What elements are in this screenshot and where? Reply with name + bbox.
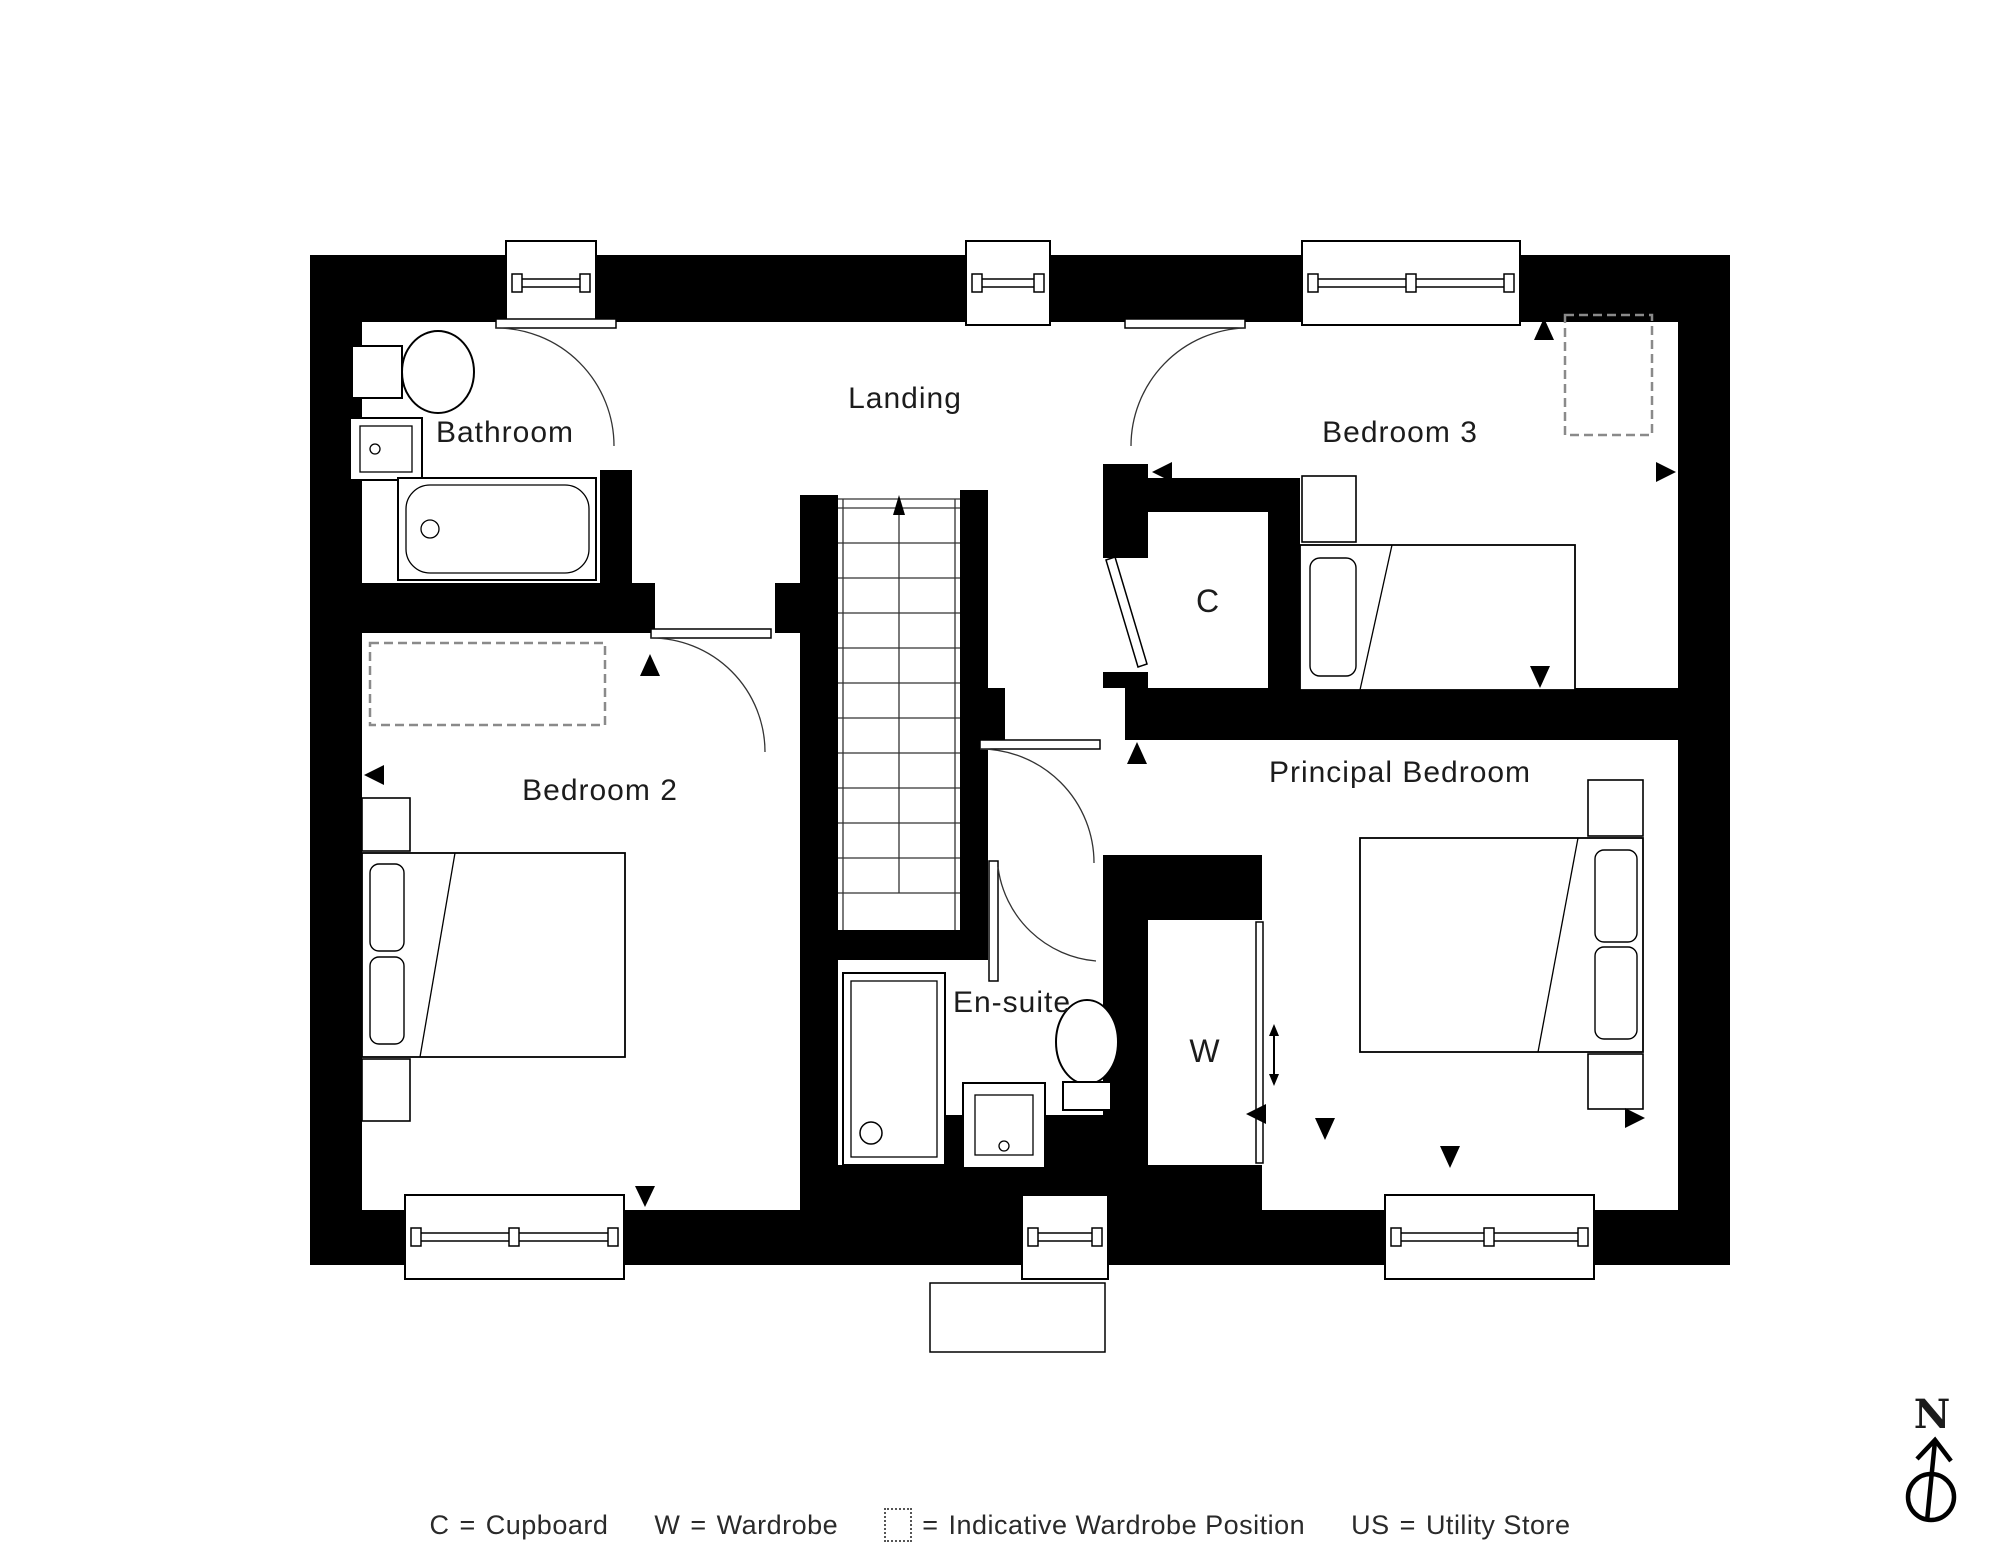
wall-wardrobe-bottom [1148, 1165, 1262, 1210]
window-ensuite [1022, 1195, 1108, 1279]
legend: C = Cupboard W = Wardrobe = Indicative W… [0, 1508, 2000, 1542]
legend-symbol: C [430, 1510, 450, 1541]
bedside-table [1302, 476, 1356, 542]
door-bedroom3 [1125, 319, 1245, 446]
marker-down-icon [635, 1186, 655, 1207]
marker-up-icon [1127, 742, 1147, 764]
legend-symbol: US [1351, 1510, 1390, 1541]
window-bedroom2 [405, 1195, 624, 1279]
wall-bedroom3-door-stub [1103, 464, 1148, 478]
principal-furniture [1256, 780, 1643, 1163]
wardrobe-box-icon [884, 1508, 912, 1542]
window-landing [966, 241, 1050, 325]
label-principal-bedroom: Principal Bedroom [1269, 756, 1531, 789]
marker-down-icon [1315, 1118, 1335, 1140]
bathroom-fixtures [350, 331, 596, 580]
bedroom2-furniture [362, 643, 625, 1121]
legend-label: Utility Store [1426, 1510, 1571, 1541]
label-ensuite: En-suite [953, 986, 1071, 1019]
stairs [838, 495, 960, 930]
marker-up-icon [640, 654, 660, 676]
sink-icon [350, 418, 422, 480]
ensuite-sink-icon [963, 1083, 1045, 1168]
north-compass: N [1908, 1391, 1954, 1521]
stairs-up-arrow-icon [893, 495, 905, 515]
indicative-wardrobe-bedroom3 [1565, 315, 1652, 435]
label-cupboard: C [1196, 583, 1220, 619]
north-label: N [1914, 1391, 1951, 1438]
wall-ensuite-southwest [838, 1165, 945, 1210]
indicative-wardrobe-bedroom2 [370, 643, 605, 725]
double-bed-principal [1360, 838, 1643, 1052]
wall-stairs-bottom [838, 930, 988, 960]
bedroom3-furniture [1300, 315, 1652, 690]
marker-left-icon [364, 765, 384, 785]
label-bedroom3: Bedroom 3 [1322, 416, 1478, 449]
legend-item-indicative-wardrobe: = Indicative Wardrobe Position [884, 1508, 1305, 1542]
bedside-table [1588, 780, 1643, 836]
wall-right [1678, 255, 1730, 1265]
wall-cupboard-top [1103, 478, 1300, 512]
legend-label: Indicative Wardrobe Position [948, 1510, 1305, 1541]
legend-item-wardrobe: W = Wardrobe [654, 1510, 838, 1541]
legend-item-utility-store: US = Utility Store [1351, 1510, 1570, 1541]
window-bedroom3 [1302, 241, 1520, 325]
legend-item-cupboard: C = Cupboard [430, 1510, 609, 1541]
door-bedroom2 [651, 629, 771, 752]
wall-wardrobe-top [1148, 855, 1262, 920]
door-ensuite [989, 861, 1096, 981]
legend-symbol: W [654, 1510, 680, 1541]
wall-stairs-left [800, 495, 838, 1210]
floor-plan-page: Bathroom Landing Bedroom 3 Bedroom 2 Pri… [0, 0, 2000, 1561]
wall-bathroom-bottom [362, 583, 655, 633]
label-wardrobe: W [1189, 1033, 1220, 1069]
wall-cupboard-left-lower [1103, 672, 1148, 688]
legend-equals: = [1400, 1510, 1416, 1541]
wall-landing-stub [988, 688, 1005, 740]
wall-principal-north [1125, 688, 1678, 740]
wall-left [310, 255, 362, 1265]
label-bathroom: Bathroom [436, 416, 574, 449]
label-landing: Landing [848, 382, 962, 415]
wall-cupboard-left-upper [1103, 512, 1148, 558]
floor-plan-drawing: Bathroom Landing Bedroom 3 Bedroom 2 Pri… [0, 0, 2000, 1561]
shower-icon [843, 973, 945, 1165]
window-principal [1385, 1195, 1594, 1279]
bedside-table [362, 798, 410, 851]
marker-right-icon [1625, 1108, 1645, 1128]
bedside-table [362, 1059, 410, 1121]
bedside-table [1588, 1054, 1643, 1109]
wall-cupboard-right [1268, 512, 1300, 688]
door-cupboard [1106, 557, 1147, 667]
legend-equals: = [922, 1510, 938, 1541]
marker-down-icon [1440, 1146, 1460, 1168]
double-bed-bedroom2 [362, 853, 625, 1057]
toilet-icon [352, 331, 474, 413]
label-bedroom2: Bedroom 2 [522, 774, 678, 807]
wardrobe-sliding-door [1256, 922, 1279, 1163]
marker-right-icon [1656, 462, 1676, 482]
bathtub-icon [398, 478, 596, 580]
window-bathroom [506, 241, 596, 325]
wall-stairs-right [960, 490, 988, 960]
legend-equals: = [460, 1510, 476, 1541]
legend-label: Wardrobe [717, 1510, 839, 1541]
legend-label: Cupboard [486, 1510, 609, 1541]
porch-canopy-outline [930, 1283, 1105, 1352]
door-principal-bedroom [980, 740, 1100, 863]
legend-equals: = [690, 1510, 706, 1541]
